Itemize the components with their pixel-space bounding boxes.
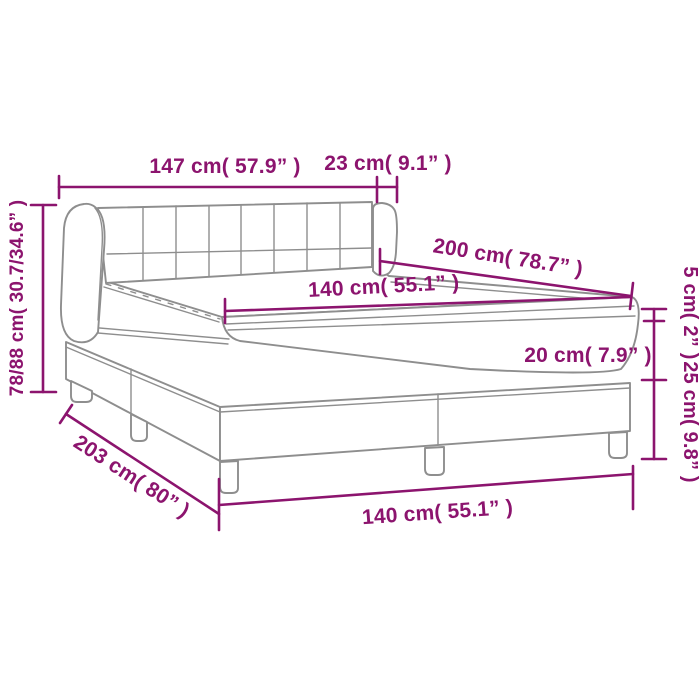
dimension-headboard-height: [31, 205, 56, 392]
headboard-left-roll: [61, 204, 105, 343]
headboard-right-roll: [373, 203, 397, 276]
label-mattress-thickness: 20 cm( 7.9” ): [524, 344, 652, 367]
bed-dimension-diagram: 147 cm( 57.9” ) 23 cm( 9.1” ) 78/88 cm( …: [0, 0, 700, 700]
mattress-bottom-edge: [86, 332, 228, 344]
bed-leg: [425, 447, 444, 475]
label-headboard-width: 147 cm( 57.9” ): [149, 155, 300, 178]
bed-leg: [609, 432, 627, 458]
label-base-height: 25 cm( 9.8” ): [679, 361, 700, 483]
label-base-length: 203 cm( 80” ): [69, 431, 193, 523]
label-headboard-height: 78/88 cm( 30.7/34.6” ): [7, 200, 28, 397]
label-base-width: 140 cm( 55.1” ): [361, 496, 514, 529]
dimension-headboard-width: [59, 176, 397, 202]
label-headboard-wing-depth: 23 cm( 9.1” ): [324, 152, 452, 175]
mattress-bottom-edge: [88, 327, 229, 339]
dimension-heights-right: [642, 309, 666, 459]
bed-leg: [220, 461, 238, 493]
label-topper-thickness: 5 cm( 2” ): [679, 266, 700, 359]
diagram-canvas: 147 cm( 57.9” ) 23 cm( 9.1” ) 78/88 cm( …: [0, 0, 700, 700]
